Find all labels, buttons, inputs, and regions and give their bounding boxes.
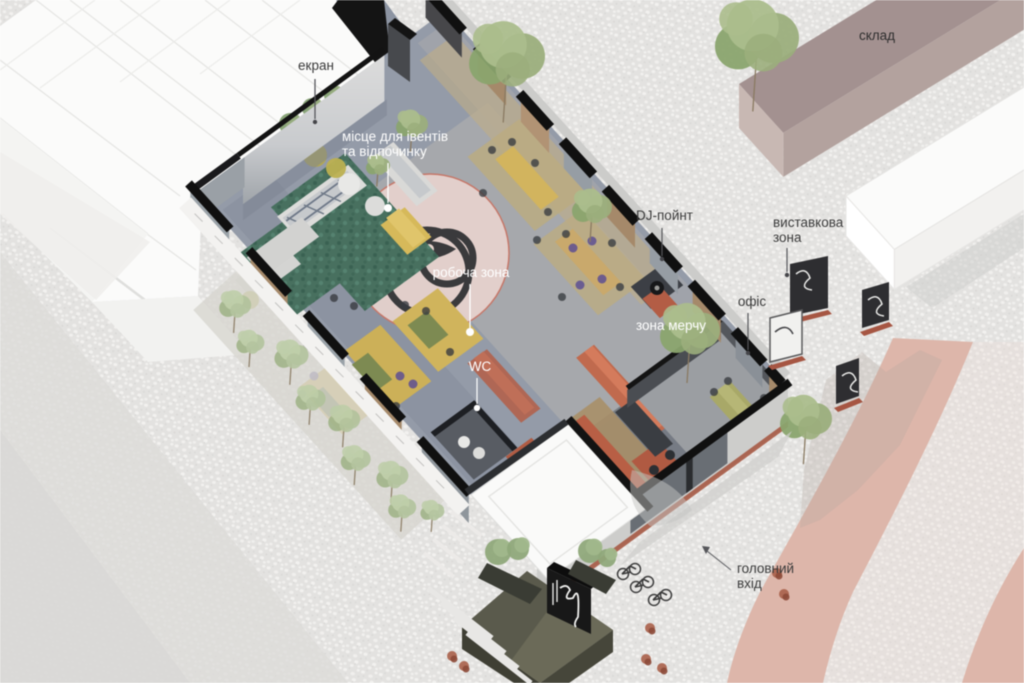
svg-text:зона: зона [773,230,802,245]
svg-text:офіс: офіс [738,294,767,309]
svg-text:місце для івентів: місце для івентів [342,129,448,144]
svg-text:головний: головний [737,561,794,576]
svg-text:WC: WC [469,359,492,374]
svg-text:DJ-пойнт: DJ-пойнт [636,208,693,223]
svg-text:екран: екран [298,58,334,73]
svg-text:робоча зона: робоча зона [433,265,510,280]
svg-text:зона мерчу: зона мерчу [636,318,706,333]
svg-text:виставкова: виставкова [773,215,844,230]
svg-text:склад: склад [859,28,895,43]
svg-text:та відпочинку: та відпочинку [342,144,427,159]
svg-text:вхід: вхід [737,576,762,591]
